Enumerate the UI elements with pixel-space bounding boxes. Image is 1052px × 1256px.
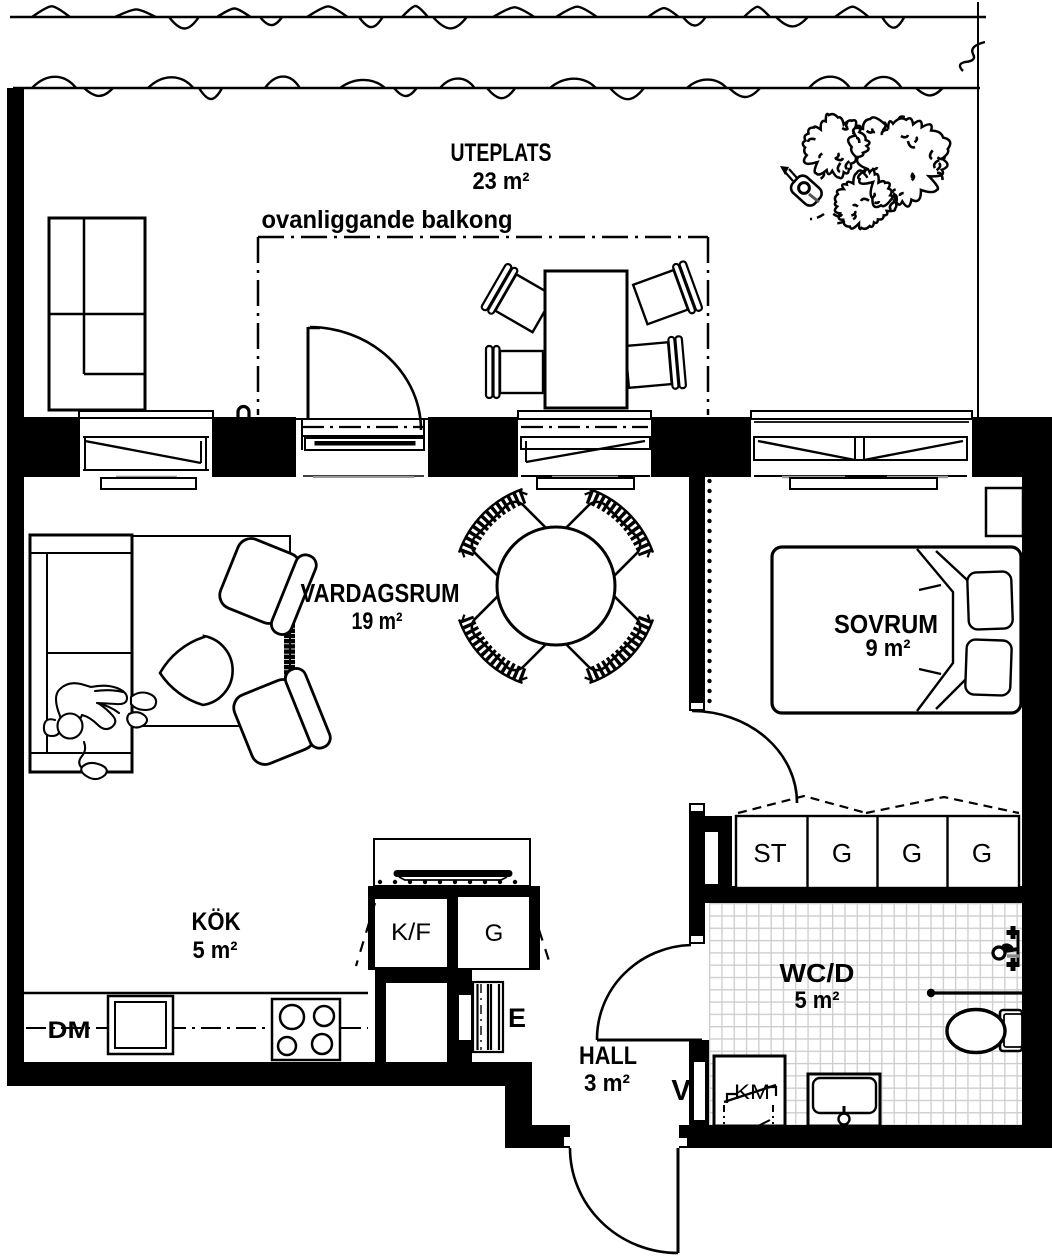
svg-text:ST: ST	[753, 838, 786, 868]
svg-text:23 m²: 23 m²	[473, 168, 530, 195]
svg-text:ovanliggande balkong: ovanliggande balkong	[262, 206, 513, 234]
svg-text:5 m²: 5 m²	[795, 987, 840, 1014]
svg-text:G: G	[832, 838, 852, 868]
svg-text:G: G	[972, 838, 992, 868]
svg-text:HALL: HALL	[579, 1042, 637, 1070]
svg-text:19 m²: 19 m²	[352, 608, 403, 635]
svg-text:9 m²: 9 m²	[866, 635, 911, 662]
svg-text:K/F: K/F	[391, 919, 431, 946]
svg-text:G: G	[485, 920, 504, 947]
svg-text:UTEPLATS: UTEPLATS	[451, 139, 552, 167]
svg-text:DM: DM	[48, 1017, 91, 1044]
svg-text:3 m²: 3 m²	[584, 1070, 630, 1097]
svg-text:KÖK: KÖK	[192, 907, 241, 936]
svg-text:KM: KM	[734, 1081, 770, 1104]
svg-text:V: V	[671, 1075, 691, 1107]
svg-text:G: G	[902, 838, 922, 868]
svg-text:WC/D: WC/D	[780, 958, 855, 988]
svg-text:E: E	[508, 1003, 526, 1033]
svg-text:5 m²: 5 m²	[193, 937, 238, 964]
svg-text:VARDAGSRUM: VARDAGSRUM	[301, 578, 460, 608]
